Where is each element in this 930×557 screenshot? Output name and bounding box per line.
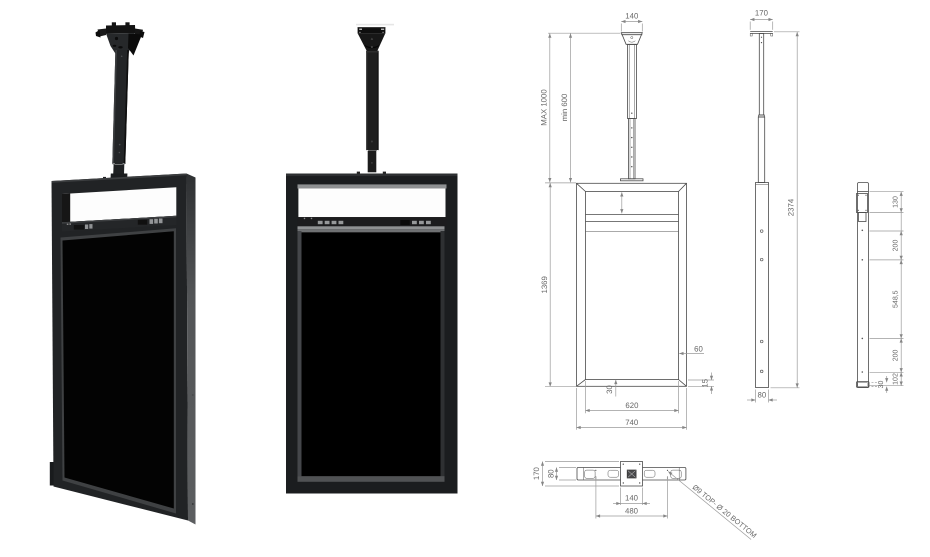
svg-text:15: 15 — [701, 378, 710, 387]
svg-text:Ø9 TOP- Ø 20 BOTTOM: Ø9 TOP- Ø 20 BOTTOM — [691, 483, 759, 540]
svg-text:2374: 2374 — [787, 198, 796, 216]
svg-text:30: 30 — [605, 385, 614, 394]
svg-text:200: 200 — [892, 240, 899, 252]
svg-text:480: 480 — [625, 507, 639, 516]
svg-text:548,5: 548,5 — [892, 290, 899, 308]
svg-text:80: 80 — [758, 391, 767, 400]
svg-text:170: 170 — [532, 466, 541, 480]
svg-text:620: 620 — [625, 401, 639, 410]
svg-text:60: 60 — [694, 345, 703, 354]
svg-text:140: 140 — [625, 494, 639, 503]
svg-text:102: 102 — [892, 373, 899, 385]
svg-text:130: 130 — [892, 196, 899, 208]
svg-text:140: 140 — [625, 12, 639, 21]
svg-text:170: 170 — [755, 9, 769, 18]
svg-text:MAX 1000: MAX 1000 — [539, 89, 548, 126]
svg-text:740: 740 — [625, 418, 639, 427]
svg-text:30: 30 — [878, 381, 885, 389]
svg-text:80: 80 — [546, 469, 555, 478]
svg-text:min 600: min 600 — [560, 93, 569, 121]
svg-text:200: 200 — [892, 349, 899, 361]
svg-text:1369: 1369 — [540, 276, 549, 293]
